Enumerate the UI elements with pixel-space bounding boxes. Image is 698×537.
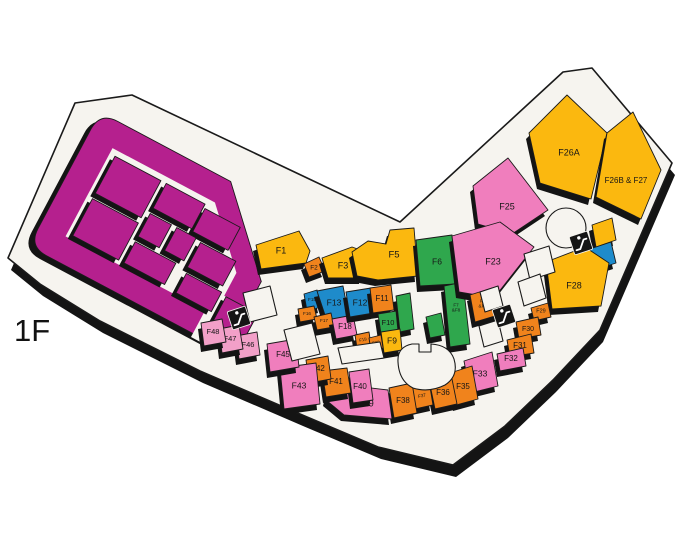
unit-label-F6: F6 xyxy=(432,256,442,266)
unit-label-F33: F33 xyxy=(473,368,488,378)
unit-label-F26A: F26A xyxy=(558,147,580,157)
unit-label-F38: F38 xyxy=(396,396,410,405)
unit-label-F48: F48 xyxy=(207,327,220,336)
floor-map: F1F2F3F5F6F7&F8F15F13F16F17F18F12F11F10F… xyxy=(0,0,698,537)
unit-label-F3: F3 xyxy=(338,260,349,270)
unit-label-F32: F32 xyxy=(504,354,518,363)
unit-label-F10: F10 xyxy=(382,318,395,327)
unit-label-F28: F28 xyxy=(566,280,582,290)
unit-label-F16: F16 xyxy=(303,311,311,316)
unit-label-F35: F35 xyxy=(456,382,470,391)
unit-label-F40: F40 xyxy=(353,382,367,391)
unit-label-F2: F2 xyxy=(310,265,318,272)
floor-label: 1F xyxy=(14,313,50,348)
unit-label-F13: F13 xyxy=(327,297,342,307)
unit-label-F26B-F27: F26B & F27 xyxy=(605,176,648,185)
unit-label-F17: F17 xyxy=(320,318,328,323)
unit-label-F46: F46 xyxy=(242,340,255,349)
unit-label-F43: F43 xyxy=(292,380,307,390)
unit-label-F36: F36 xyxy=(436,388,450,397)
unit-label-F29: F29 xyxy=(536,308,545,314)
unit-label-F11: F11 xyxy=(375,294,389,303)
unit-label-F1: F1 xyxy=(276,245,287,255)
unit-label-F5: F5 xyxy=(388,250,399,261)
unit-label-F30: F30 xyxy=(522,326,534,333)
unit-label-F25: F25 xyxy=(499,201,515,211)
unit-label-F23: F23 xyxy=(485,256,501,266)
unit-label-F18: F18 xyxy=(338,322,352,331)
unit-label-F12: F12 xyxy=(353,297,368,307)
unit-label-F45: F45 xyxy=(276,350,290,359)
unit-label-F9: F9 xyxy=(387,335,397,345)
